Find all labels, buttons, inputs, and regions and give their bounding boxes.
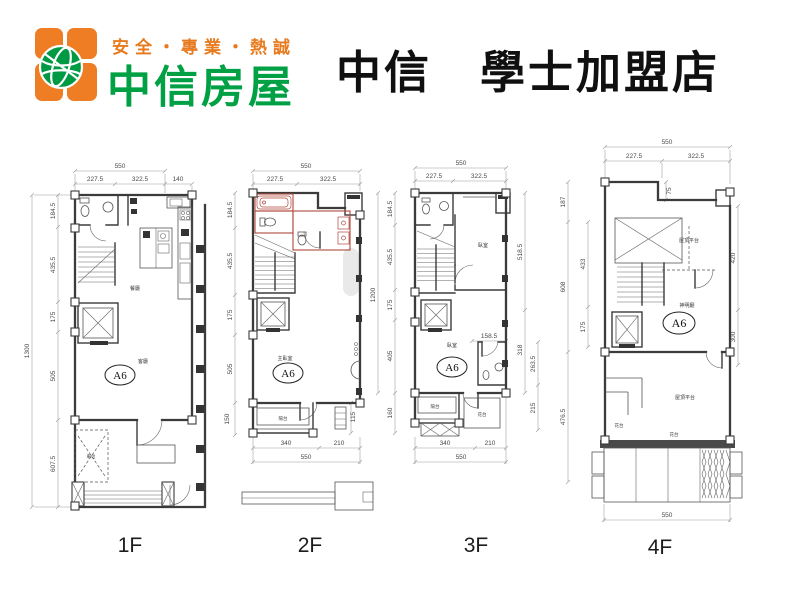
floor-plan-3f: 550 227.5 322.5 1200 184.5 435.5 175 405… — [368, 145, 558, 565]
dim-label: 550 — [301, 454, 312, 461]
dim-label: 1300 — [24, 343, 31, 358]
unit-label: A6 — [672, 316, 687, 330]
room-label: 花台 — [670, 431, 679, 438]
dim-label: 608 — [560, 281, 567, 292]
dim-label: 150 — [224, 413, 231, 424]
dim-label: 175 — [580, 321, 587, 332]
dim-label: 435.5 — [50, 256, 57, 273]
dim-label: 227.5 — [267, 176, 284, 183]
room-label: 主臥室 — [277, 355, 292, 362]
dim-label: 184.5 — [227, 201, 234, 218]
floor-label-1f: 1F — [90, 534, 170, 558]
room-label: 花台 — [615, 422, 624, 429]
dim-label: 318 — [517, 344, 524, 355]
floor-plan-4f: 550 227.5 322.5 75 187 608 476.5 433 175… — [556, 130, 756, 570]
floor-label-3f: 3F — [436, 534, 516, 558]
floor-label-2f: 2F — [270, 534, 350, 558]
dim-label: 115 — [350, 411, 357, 422]
dim-label: 322.5 — [132, 176, 149, 183]
dim-label: 184.5 — [50, 202, 57, 219]
dim-label: 175 — [50, 311, 57, 322]
dim-label: 322.5 — [688, 153, 705, 160]
dim-label: 175 — [387, 299, 394, 310]
room-label: 花台 — [478, 411, 487, 418]
dim-label: 435.5 — [387, 248, 394, 265]
dim-label: 210 — [334, 440, 345, 447]
dim-label: 476.5 — [560, 408, 567, 425]
dim-label: 550 — [662, 139, 673, 146]
floor-label-4f: 4F — [620, 536, 700, 560]
room-label: 臥室 — [478, 242, 488, 249]
room-label: 屋頂平台 — [679, 237, 699, 244]
dim-label: 322.5 — [471, 173, 488, 180]
dim-label: 322.5 — [320, 176, 337, 183]
dim-label: 263.5 — [530, 355, 537, 372]
dim-label: 550 — [301, 163, 312, 170]
room-label: 餐廳 — [130, 285, 140, 292]
globe-icon — [37, 43, 85, 91]
room-label: 臥室 — [447, 342, 457, 349]
dim-label: 550 — [662, 512, 673, 519]
dim-label: 227.5 — [626, 153, 643, 160]
dim-label: 505 — [227, 363, 234, 374]
dim-label: 505 — [50, 370, 57, 381]
dim-label: 550 — [456, 160, 467, 167]
dim-label: 435.5 — [227, 252, 234, 269]
room-label: 屋頂平台 — [675, 394, 695, 401]
dim-label: 140 — [173, 176, 184, 183]
company-brand-name: 中信房屋 — [107, 51, 295, 115]
dim-label: 175 — [227, 309, 234, 320]
dim-label: 340 — [281, 440, 292, 447]
dim-label: 160 — [387, 407, 394, 418]
dim-label: 550 — [115, 163, 126, 170]
unit-label: A6 — [281, 368, 295, 380]
dim-label: 210 — [485, 440, 496, 447]
room-label: 神明廳 — [679, 302, 694, 309]
dim-label: 1200 — [370, 287, 377, 302]
room-label: 車位 — [87, 453, 96, 460]
dim-label: 433 — [580, 258, 587, 269]
dim-label: 607.5 — [50, 455, 57, 472]
dim-label: 158.5 — [481, 333, 498, 340]
dim-label: 187 — [560, 196, 567, 207]
dim-label: 184.5 — [387, 200, 394, 217]
floor-plan-1f: 550 227.5 322.5 140 1300 184.5 435.5 175… — [20, 145, 220, 565]
room-label: 陽台 — [279, 415, 288, 422]
dim-label: 550 — [456, 454, 467, 461]
dim-label: 227.5 — [87, 176, 104, 183]
dim-label: 518.5 — [517, 243, 524, 260]
dim-label: 340 — [440, 440, 451, 447]
unit-label: A6 — [113, 370, 127, 382]
dim-label: 75 — [666, 187, 673, 195]
room-label: 客廳 — [138, 358, 148, 365]
room-label: 陽台 — [431, 403, 440, 410]
dim-label: 227.5 — [426, 173, 443, 180]
dim-label: 405 — [387, 350, 394, 361]
unit-label: A6 — [445, 362, 459, 374]
company-logo — [33, 28, 103, 104]
store-title: 中信 學士加盟店 — [336, 36, 720, 101]
dim-label: 215 — [530, 402, 537, 413]
